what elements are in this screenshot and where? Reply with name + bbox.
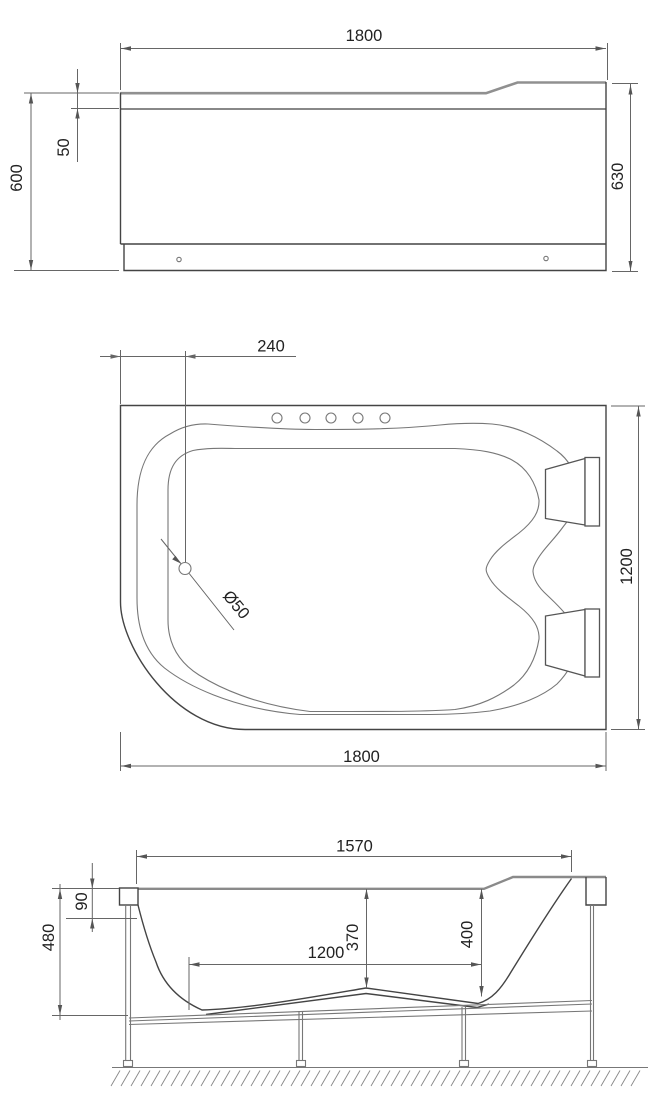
- svg-text:630: 630: [609, 163, 627, 191]
- svg-text:1200: 1200: [308, 944, 345, 962]
- svg-text:1800: 1800: [346, 27, 383, 45]
- svg-text:400: 400: [459, 921, 477, 949]
- svg-text:1800: 1800: [343, 748, 380, 766]
- svg-text:50: 50: [55, 138, 73, 156]
- svg-text:90: 90: [73, 892, 91, 910]
- svg-text:370: 370: [344, 924, 362, 952]
- svg-text:240: 240: [257, 338, 285, 356]
- svg-text:1200: 1200: [618, 548, 636, 585]
- svg-text:1570: 1570: [336, 838, 373, 856]
- svg-text:480: 480: [40, 924, 58, 952]
- svg-text:600: 600: [8, 164, 26, 192]
